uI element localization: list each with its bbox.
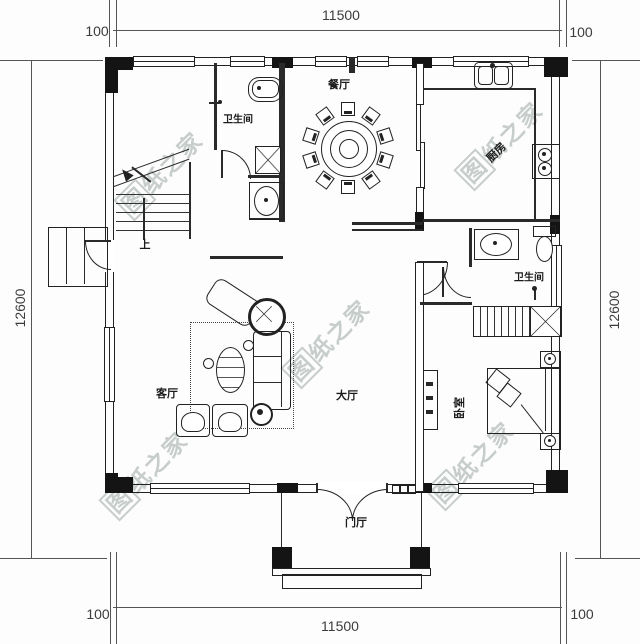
- dim-left-total: 12600: [12, 289, 28, 328]
- cup: [243, 340, 254, 351]
- dim-tick: [109, 0, 110, 47]
- corner-column: [105, 477, 133, 493]
- dim-tick: [559, 0, 560, 47]
- bathtub-basin: [252, 80, 279, 98]
- corner-column: [544, 57, 568, 77]
- label-bath1: 卫生间: [223, 111, 253, 126]
- dining-chair: [341, 102, 355, 116]
- window: [315, 56, 347, 67]
- wardrobe: [473, 306, 532, 337]
- corner-column: [546, 470, 568, 493]
- wall-tee: [349, 57, 355, 73]
- burner-dot: [542, 152, 546, 156]
- wall-pier: [277, 483, 298, 493]
- dim-ext-topright: [572, 60, 640, 61]
- step-line: [84, 228, 85, 284]
- dim-line-left: [31, 60, 32, 558]
- burner-dot: [542, 166, 546, 170]
- switch-dot: [532, 286, 537, 291]
- dim-line-top: [113, 30, 562, 31]
- porch-edge: [281, 493, 282, 549]
- switch-mark: [534, 290, 536, 300]
- basin-drain: [264, 198, 268, 202]
- wall: [423, 219, 560, 222]
- armchair-seat: [181, 412, 205, 432]
- stair-arrow-line: [143, 198, 145, 240]
- threshold-mark: [392, 485, 400, 494]
- shower-box: [255, 146, 281, 174]
- porch-edge: [421, 493, 422, 549]
- tv-mark: [426, 396, 433, 400]
- wall: [352, 229, 423, 231]
- label-hall: 大厅: [336, 387, 358, 403]
- stair-rail: [189, 162, 191, 239]
- wall: [469, 228, 472, 267]
- armchair-seat: [218, 412, 242, 432]
- dim-bottom-left: 100: [86, 606, 109, 622]
- tv-mark: [426, 410, 433, 414]
- label-entry: 门厅: [345, 514, 367, 530]
- coffee-table: [216, 347, 245, 393]
- dim-ext-bottomright: [575, 558, 640, 559]
- wall: [416, 187, 424, 214]
- plant-dot: [257, 409, 263, 415]
- wall: [416, 63, 424, 105]
- dim-right-total: 12600: [606, 291, 622, 330]
- dim-tick: [116, 0, 117, 47]
- dim-tick: [566, 0, 567, 47]
- porch-step: [282, 574, 422, 589]
- dim-tick: [110, 552, 111, 644]
- dim-top-left: 100: [85, 23, 108, 39]
- toilet-bowl: [536, 236, 553, 262]
- sofa-back-line: [281, 332, 282, 407]
- sofa: [253, 331, 291, 410]
- window: [150, 483, 250, 494]
- label-bedroom: 卧室: [451, 397, 467, 419]
- label-living: 客厅: [156, 385, 178, 401]
- bed-headline: [545, 369, 546, 431]
- label-stairs-up: 上: [140, 236, 151, 252]
- window: [230, 56, 265, 67]
- dim-line-bottom: [113, 607, 562, 608]
- window: [458, 483, 534, 494]
- dim-ext-bottomleft: [0, 558, 107, 559]
- dining-chair: [341, 180, 355, 194]
- faucet: [490, 63, 495, 68]
- porch-column: [272, 547, 292, 568]
- switch-dot: [218, 100, 222, 104]
- window: [357, 56, 389, 67]
- tv-mark: [426, 382, 433, 386]
- stair-treads: [116, 186, 190, 238]
- wardrobe-mirror: [530, 306, 561, 337]
- dim-tick: [566, 552, 567, 644]
- wall: [214, 63, 217, 150]
- wall-pier: [105, 77, 118, 93]
- window: [104, 327, 115, 402]
- side-steps: [48, 227, 108, 287]
- threshold-mark: [400, 485, 408, 494]
- floor-plan-canvas: 11500 100 100 12600 12600 11500 100 100 …: [0, 0, 640, 644]
- porch-column: [410, 547, 430, 568]
- step-line: [66, 228, 67, 284]
- label-dining: 餐厅: [328, 76, 350, 92]
- wall: [210, 256, 283, 259]
- lamp-dot: [548, 357, 551, 360]
- sink-basin: [494, 66, 509, 85]
- window: [133, 56, 195, 67]
- wall: [248, 175, 282, 178]
- dim-bottom-total: 11500: [321, 618, 359, 634]
- dining-table-center: [339, 139, 359, 159]
- cup: [203, 358, 214, 369]
- wall: [352, 222, 423, 225]
- dim-top-total: 11500: [322, 7, 360, 23]
- dim-tick: [560, 552, 561, 644]
- dim-top-right: 100: [569, 24, 592, 40]
- wall: [420, 302, 472, 305]
- tv-cabinet: [423, 370, 438, 430]
- basin-drain: [493, 241, 497, 245]
- dim-line-right: [600, 60, 601, 558]
- label-bath2: 卫生间: [514, 269, 544, 284]
- lamp-dot: [548, 439, 551, 442]
- sofa-cushion-line: [254, 382, 281, 383]
- sink-basin: [478, 66, 493, 85]
- sliding-door-panel: [420, 142, 425, 189]
- dim-bottom-right: 100: [570, 606, 593, 622]
- dim-tick: [116, 552, 117, 644]
- dim-ext-topleft: [0, 60, 103, 61]
- bathtub-drain: [257, 86, 261, 90]
- fan-blades: [253, 303, 275, 325]
- sofa-cushion-line: [254, 356, 281, 357]
